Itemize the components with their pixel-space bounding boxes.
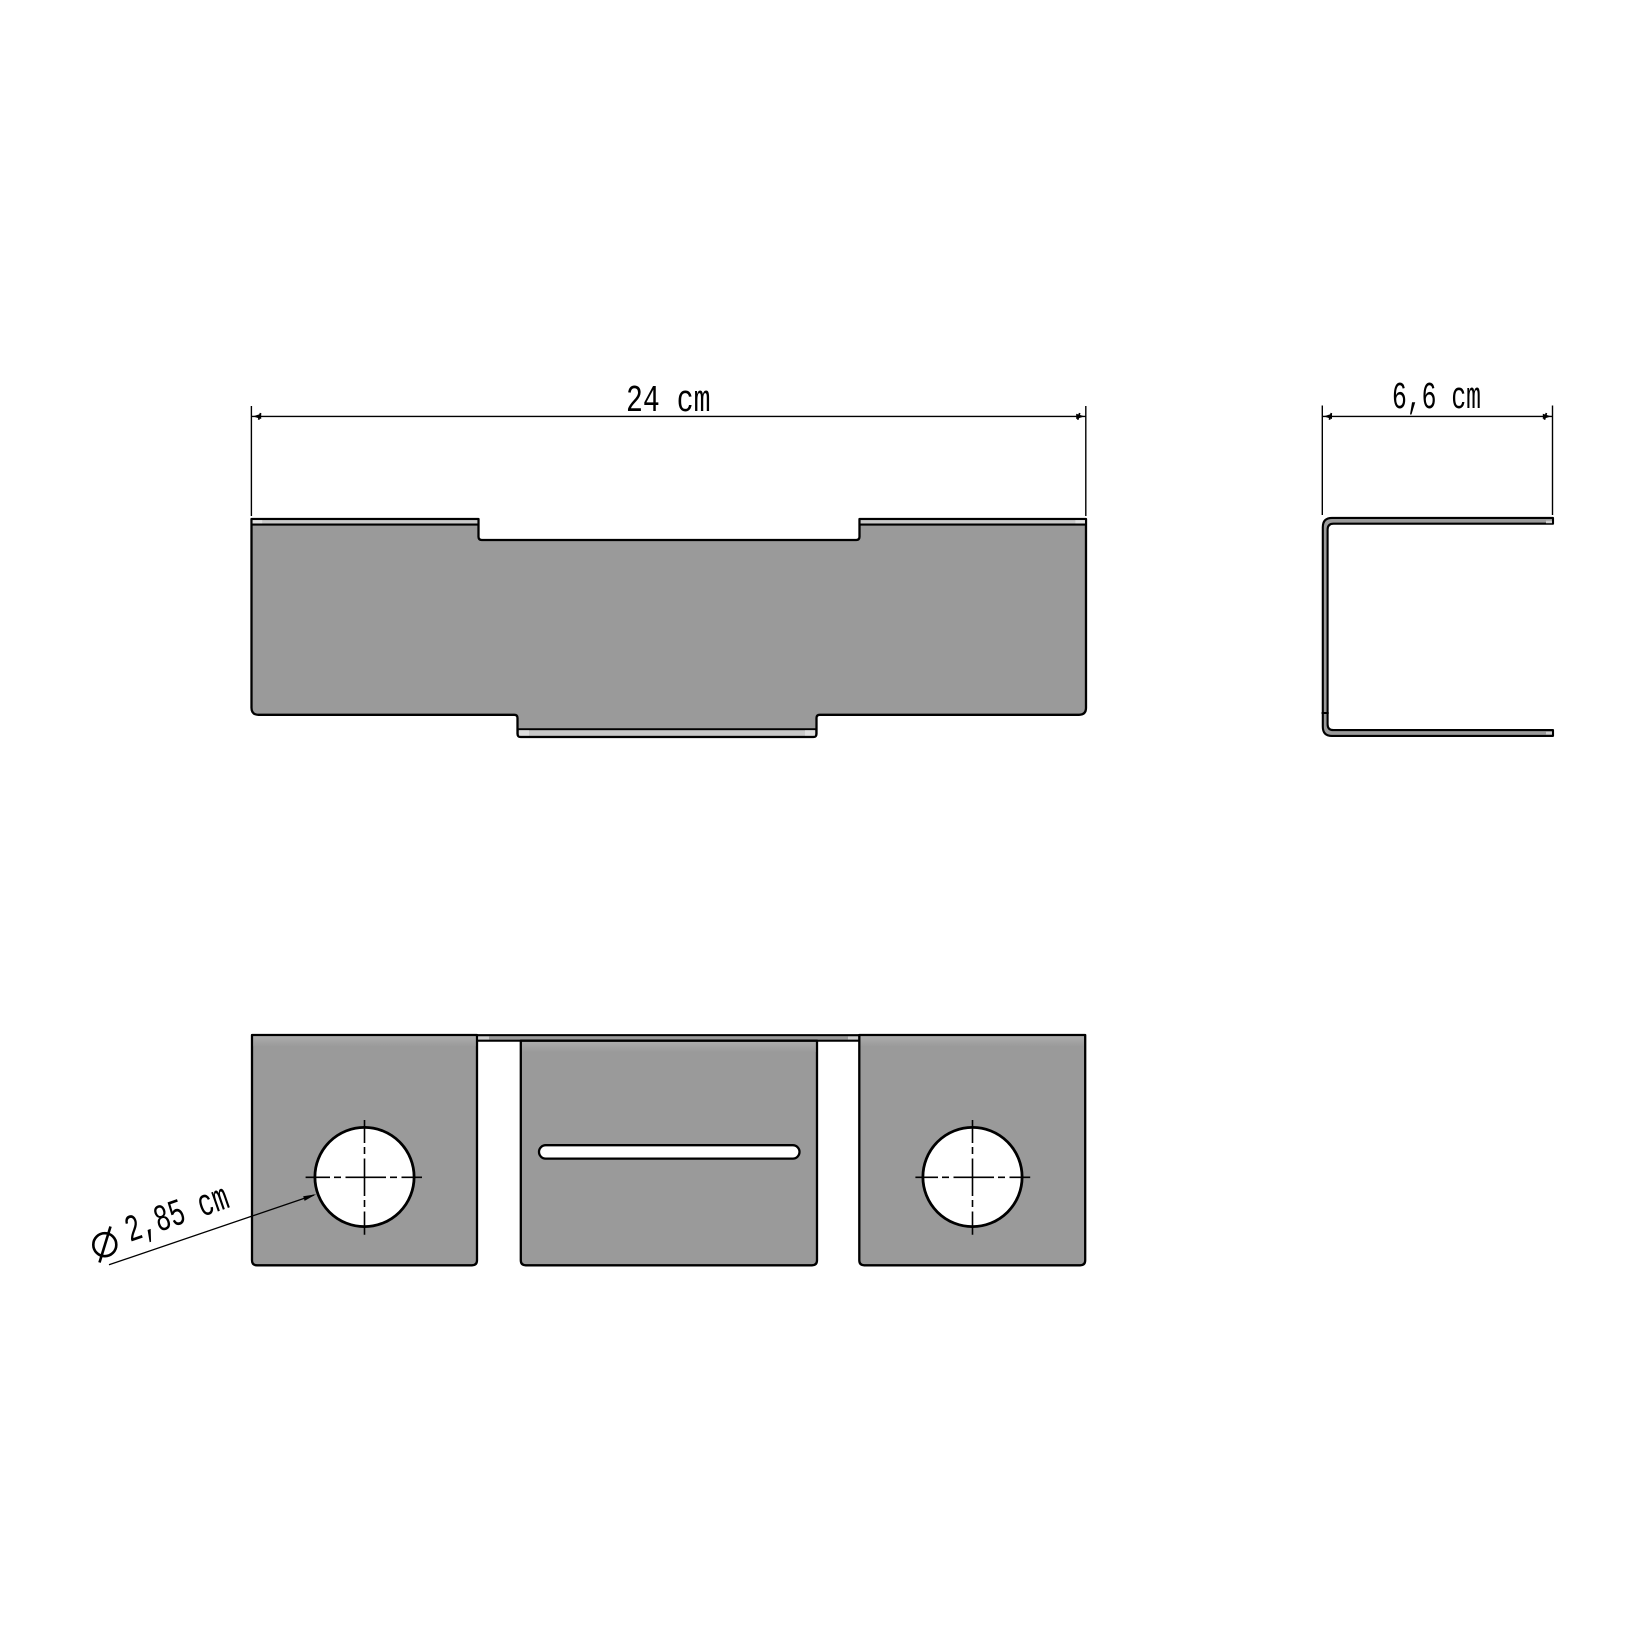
svg-text:6,6 cm: 6,6 cm [1392,377,1481,420]
svg-text:24 cm: 24 cm [626,380,711,423]
